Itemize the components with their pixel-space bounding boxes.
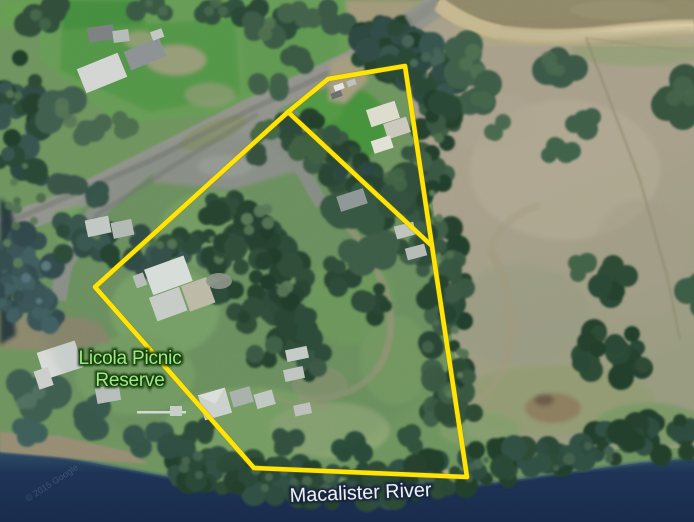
svg-text:Licola Picnic: Licola Picnic [78, 348, 181, 369]
svg-text:Reserve: Reserve [95, 370, 164, 391]
